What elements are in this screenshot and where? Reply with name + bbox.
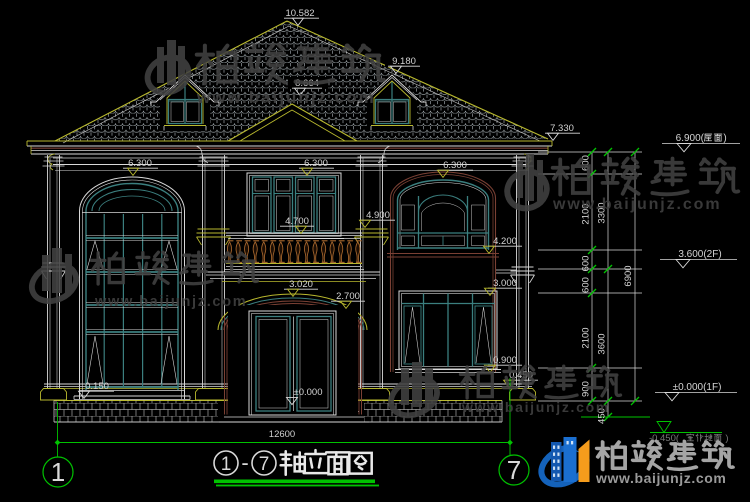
svg-text:3.600(2F): 3.600(2F): [678, 249, 721, 260]
svg-text:2.700: 2.700: [336, 291, 360, 302]
svg-text:600: 600: [581, 277, 592, 293]
svg-text:600: 600: [581, 256, 592, 272]
svg-text:www.baijunjz.com: www.baijunjz.com: [196, 88, 376, 107]
svg-text:±0.000(1F): ±0.000(1F): [673, 382, 722, 393]
svg-text:±0.000: ±0.000: [294, 387, 323, 398]
svg-text:): ): [725, 433, 728, 444]
svg-text:4.700: 4.700: [285, 216, 309, 227]
svg-text:www.baijunjz.com: www.baijunjz.com: [461, 399, 610, 415]
svg-text:0.150: 0.150: [85, 381, 109, 392]
svg-text:6.900(: 6.900(: [676, 133, 705, 144]
svg-text:1: 1: [51, 457, 65, 487]
svg-text:6900: 6900: [623, 265, 634, 286]
svg-text:3600: 3600: [597, 333, 608, 354]
svg-text:4.200: 4.200: [493, 236, 517, 247]
svg-text:-: -: [241, 450, 248, 475]
svg-text:www.baijunjz.com: www.baijunjz.com: [552, 196, 722, 213]
svg-text:7: 7: [259, 454, 270, 475]
svg-text:www.baijunjz.com: www.baijunjz.com: [94, 294, 247, 310]
svg-text:12600: 12600: [269, 429, 295, 440]
svg-text:2100: 2100: [581, 327, 592, 348]
svg-text:3.000: 3.000: [493, 278, 517, 289]
svg-text:10.582: 10.582: [285, 8, 314, 19]
svg-text:7.330: 7.330: [550, 123, 574, 134]
svg-text:6.300: 6.300: [443, 160, 467, 171]
svg-text:6.300: 6.300: [128, 158, 152, 169]
svg-text:7: 7: [507, 455, 521, 485]
svg-text:0.900: 0.900: [493, 355, 517, 366]
svg-text:4.900: 4.900: [366, 210, 390, 221]
svg-text:): ): [723, 133, 726, 144]
svg-text:1: 1: [221, 454, 232, 475]
svg-text:www.baijunjz.com: www.baijunjz.com: [595, 470, 726, 486]
svg-text:6.300: 6.300: [304, 158, 328, 169]
svg-text:3.020: 3.020: [289, 279, 313, 290]
svg-text:9.180: 9.180: [392, 56, 416, 67]
